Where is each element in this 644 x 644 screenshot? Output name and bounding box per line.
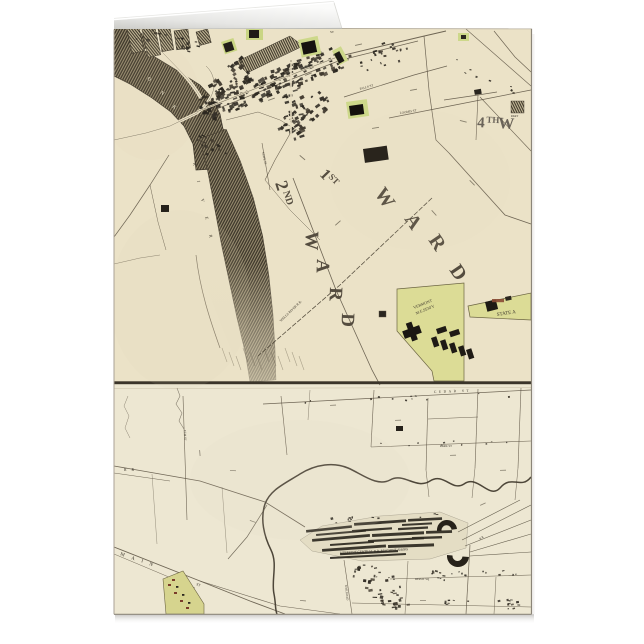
svg-text:A: A <box>312 259 333 274</box>
svg-text:R R: R R <box>124 468 136 472</box>
svg-text:W: W <box>498 115 515 133</box>
svg-text:ELM ST: ELM ST <box>183 430 187 441</box>
svg-text:DEPOT SQ: DEPOT SQ <box>415 577 430 581</box>
svg-text:PARK ST: PARK ST <box>440 444 452 448</box>
svg-text:W: W <box>300 231 322 251</box>
svg-text:R: R <box>325 287 346 302</box>
svg-text:D: D <box>337 313 358 327</box>
